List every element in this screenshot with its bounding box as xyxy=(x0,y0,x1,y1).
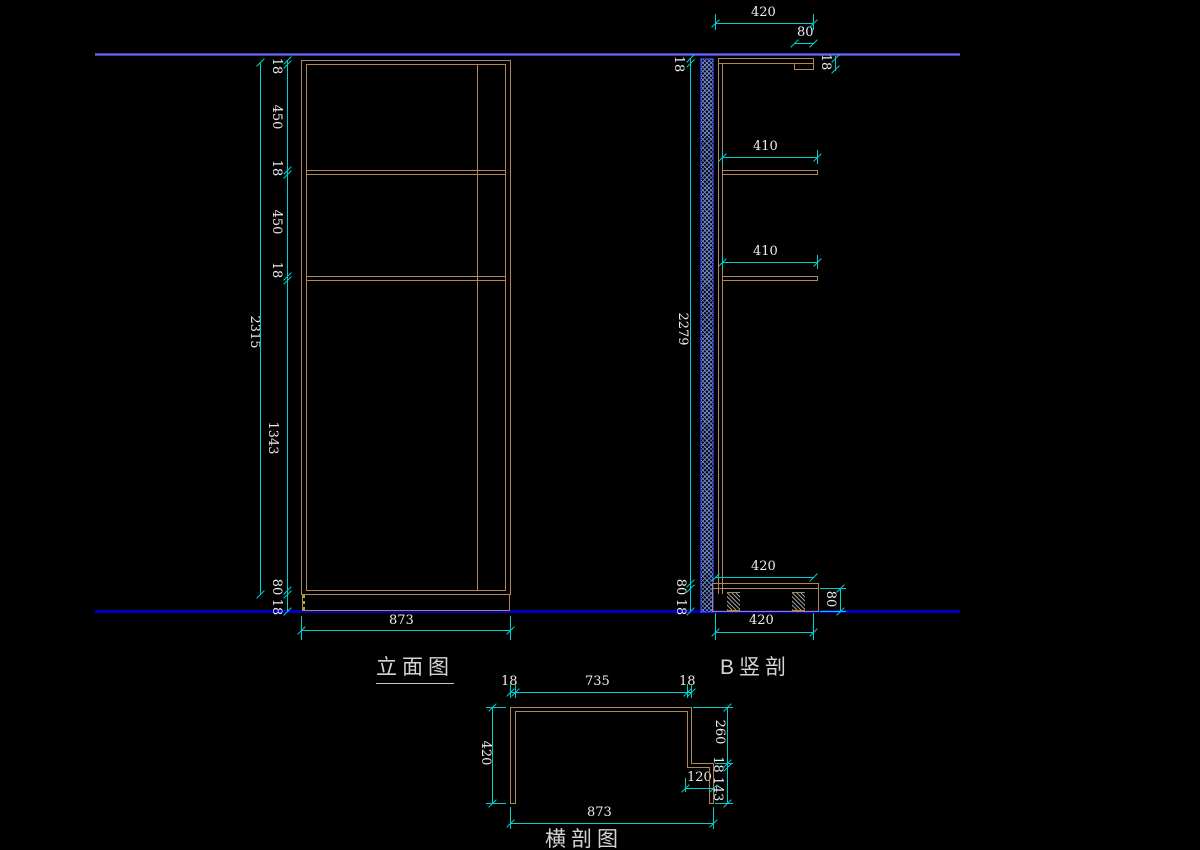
cabinet-line xyxy=(722,276,818,277)
dim-text: 18 xyxy=(268,56,284,76)
dim-text: 450 xyxy=(268,96,284,138)
cabinet-line xyxy=(306,174,506,175)
dimension-line xyxy=(510,807,511,829)
cabinet-line xyxy=(722,174,818,175)
dimension-line xyxy=(813,613,814,640)
dim-text: 1343 xyxy=(264,413,280,463)
dimension-line xyxy=(287,60,288,611)
dimension-line xyxy=(685,778,686,792)
dim-text: 450 xyxy=(268,201,284,243)
cabinet-line xyxy=(687,711,688,768)
cabinet-line xyxy=(712,588,819,589)
dimension-line xyxy=(715,23,814,24)
wall-hatch-section xyxy=(700,58,714,613)
base-foot-left xyxy=(727,592,740,611)
cabinet-line xyxy=(722,280,818,281)
cabinet-line xyxy=(718,58,814,59)
dim-text: 80 xyxy=(797,25,814,41)
dim-text: 873 xyxy=(389,613,414,629)
cabinet-line xyxy=(306,280,506,281)
cabinet-line xyxy=(306,64,307,591)
cabinet-line xyxy=(712,611,819,612)
cabinet-line xyxy=(818,583,819,612)
view-label-plan: 横剖图 xyxy=(545,823,623,850)
dim-text: 18 xyxy=(268,158,284,178)
cabinet-line xyxy=(713,763,714,804)
dim-text: 420 xyxy=(477,736,493,770)
cabinet-line xyxy=(709,803,714,804)
dimension-line xyxy=(690,58,691,611)
dimension-line xyxy=(715,632,814,633)
base-foot-right xyxy=(792,592,805,611)
cabinet-line xyxy=(718,58,719,594)
cabinet-line xyxy=(306,170,506,171)
cabinet-line xyxy=(718,63,801,64)
dim-text: 420 xyxy=(751,559,776,575)
dimension-line xyxy=(820,588,846,589)
dimension-line xyxy=(486,707,506,708)
cabinet-line xyxy=(709,767,710,804)
cabinet-line xyxy=(302,594,303,610)
cabinet-line xyxy=(817,276,818,281)
dim-text: 735 xyxy=(585,674,610,690)
cabinet-line xyxy=(712,583,819,584)
view-label-section-b: B竖剖 xyxy=(720,651,791,681)
dim-text: 2279 xyxy=(674,304,690,354)
dim-text: 18 xyxy=(268,260,284,280)
dimension-line xyxy=(492,707,493,804)
dimension-line xyxy=(715,577,814,578)
cabinet-line xyxy=(722,64,723,594)
cabinet-line xyxy=(302,610,510,611)
cad-canvas: 18 450 18 450 18 1343 2315 80 18 873 立面图… xyxy=(0,0,1200,850)
cabinet-line xyxy=(509,594,510,610)
cabinet-line xyxy=(306,276,506,277)
dimension-line xyxy=(685,788,714,789)
hidden-dashed-line xyxy=(303,595,305,610)
cabinet-line xyxy=(515,711,688,712)
cabinet-line xyxy=(687,767,710,768)
dim-text: 873 xyxy=(587,805,612,821)
cabinet-line xyxy=(691,707,692,764)
dimension-line xyxy=(727,707,728,804)
dim-text: 18 xyxy=(670,53,686,75)
cabinet-line xyxy=(515,711,516,804)
dim-text: 410 xyxy=(753,139,778,155)
dimension-line xyxy=(715,613,716,640)
cabinet-line xyxy=(817,170,818,175)
dimension-line xyxy=(820,611,846,612)
dim-text: 80 xyxy=(268,577,284,597)
cabinet-line xyxy=(306,590,506,591)
dim-text: 420 xyxy=(751,5,776,21)
cabinet-line xyxy=(813,58,814,70)
cabinet-line xyxy=(510,60,511,595)
dimension-line xyxy=(713,807,714,829)
cabinet-line xyxy=(301,60,511,61)
cabinet-line xyxy=(510,707,511,804)
dim-text: 410 xyxy=(753,244,778,260)
cabinet-line xyxy=(477,64,478,591)
cabinet-line xyxy=(505,64,506,591)
cabinet-line xyxy=(301,60,302,595)
cabinet-line xyxy=(510,803,516,804)
cabinet-line xyxy=(691,763,714,764)
cabinet-line xyxy=(301,594,511,595)
cabinet-line xyxy=(722,170,818,171)
dimension-line xyxy=(722,157,818,158)
dimension-line xyxy=(486,803,506,804)
dim-text: 18 xyxy=(672,598,688,616)
dim-text: 420 xyxy=(749,613,774,629)
shelf-front-edge xyxy=(794,63,814,70)
dim-text: 18 xyxy=(268,598,284,616)
dimension-line xyxy=(301,630,511,631)
view-label-elevation: 立面图 xyxy=(376,651,454,684)
dim-text: 260 xyxy=(711,716,727,748)
dimension-line xyxy=(260,62,261,594)
dimension-line xyxy=(510,823,714,824)
dimension-line xyxy=(715,803,733,804)
dimension-line xyxy=(722,262,818,263)
dimension-line xyxy=(510,692,692,693)
cabinet-line xyxy=(306,64,506,65)
dimension-line xyxy=(840,588,841,612)
cabinet-line xyxy=(712,583,713,612)
cabinet-line xyxy=(510,707,692,708)
